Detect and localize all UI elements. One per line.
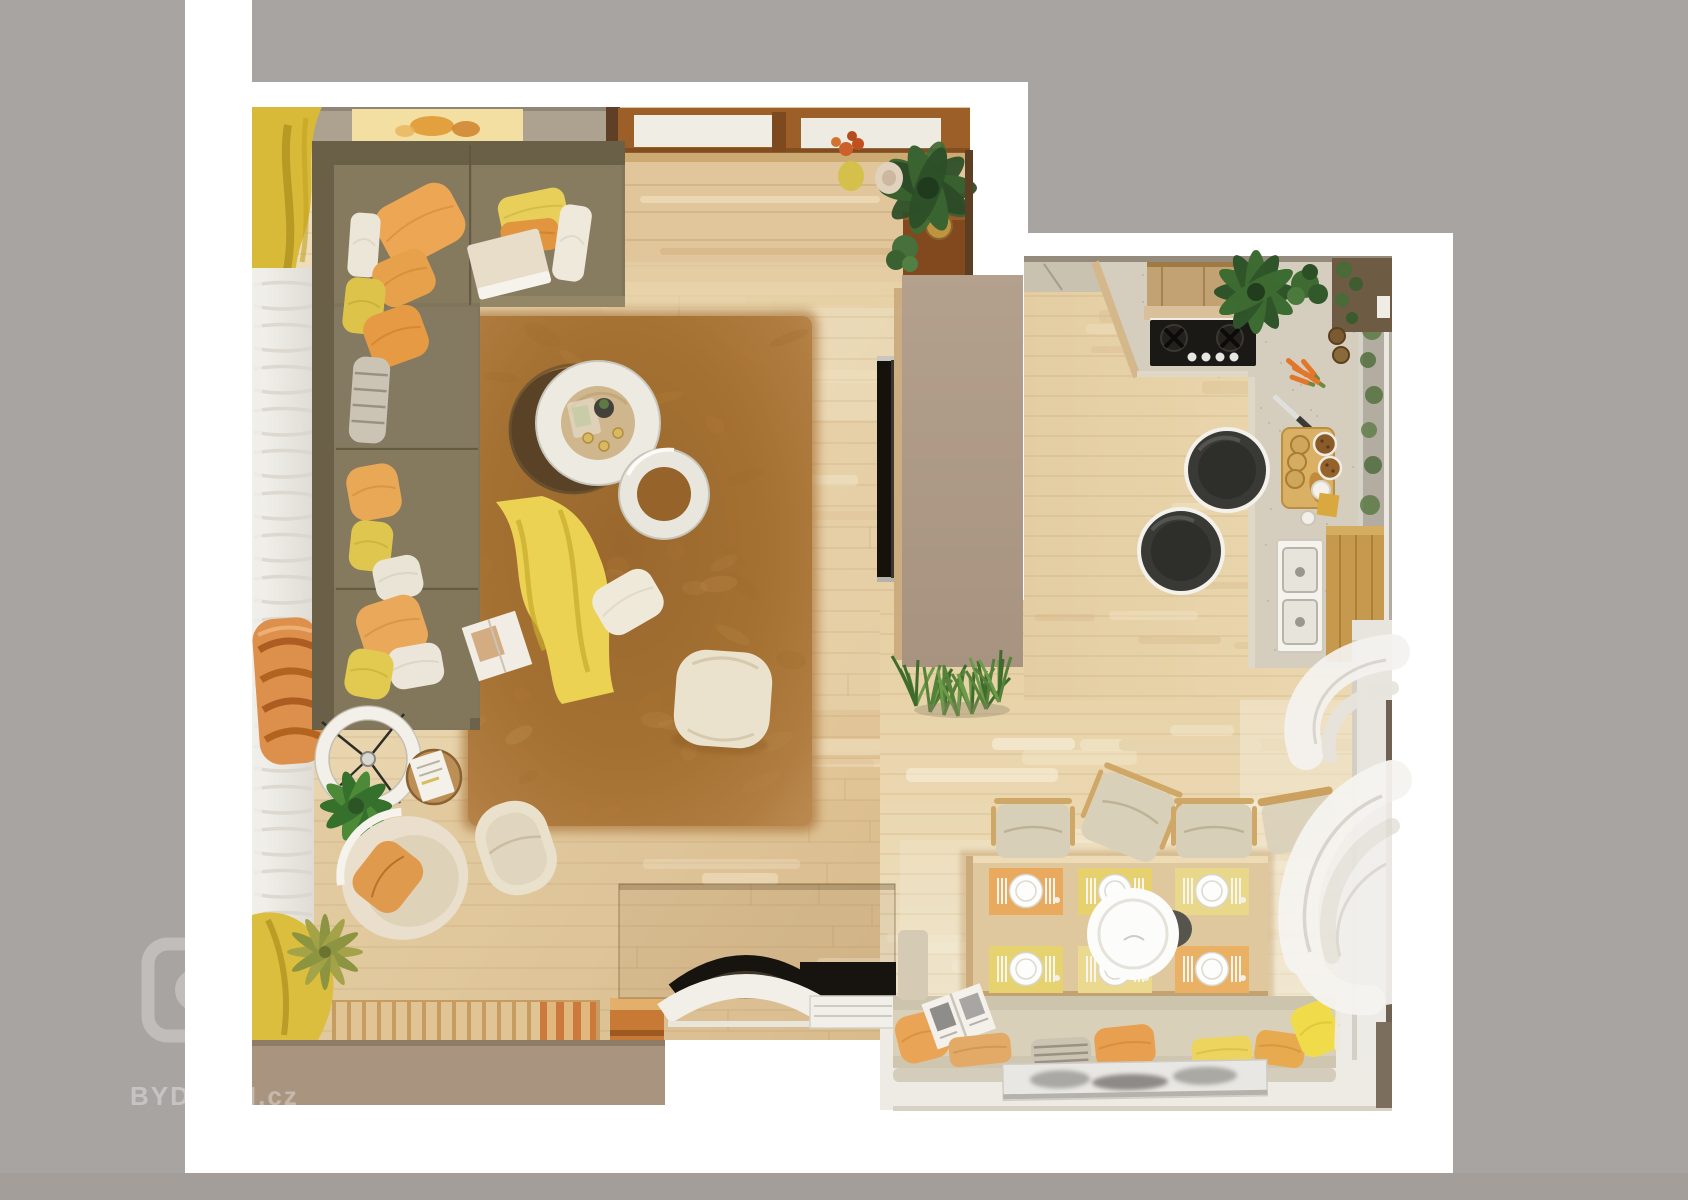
svg-text:BYDLENI.cz: BYDLENI.cz [130, 1081, 299, 1111]
